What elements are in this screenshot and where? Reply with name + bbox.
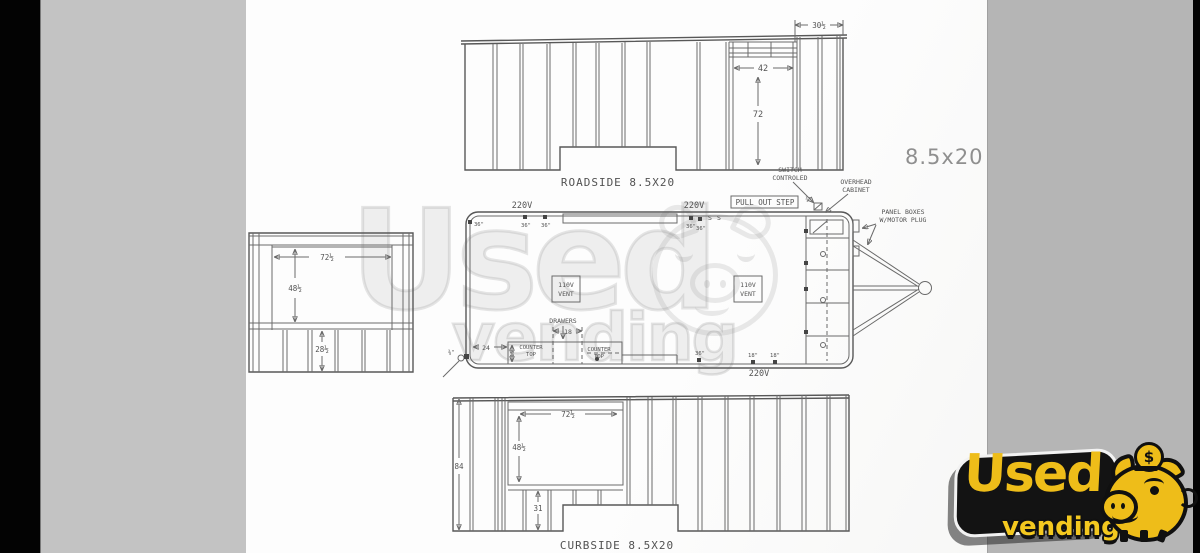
curbside-dim-height: 84	[454, 462, 464, 471]
vent-right-label1: 110V	[740, 281, 756, 289]
roadside-siding	[493, 42, 729, 170]
outlet-label: 36"	[521, 223, 531, 229]
vent-right-label2: VENT	[740, 290, 756, 298]
roadside-title: ROADSIDE 8.5X20	[561, 176, 675, 189]
curbside-dim-window-width: 72½	[561, 410, 575, 419]
drawers-label: DRAWERS	[549, 317, 576, 325]
sheet-size-label: 8.5x20	[905, 145, 984, 169]
vent-box-right	[734, 276, 762, 302]
roadside-dim-top: 30½	[812, 21, 826, 30]
roadside-dim-window-height: 72	[753, 110, 763, 120]
outlet-label: 18"	[748, 353, 758, 359]
pig-nostril-icon	[1111, 503, 1115, 509]
switch-controlled-label2: CONTROLED	[772, 174, 807, 182]
faucet-icon	[595, 357, 599, 361]
power-label-220v: 220V	[684, 201, 704, 211]
trailer-tongue	[853, 220, 932, 336]
logo-word-used: Used	[963, 448, 1103, 500]
power-label-220v: 220V	[749, 369, 769, 379]
roadside-siding-wheelwell	[573, 42, 650, 147]
hitch-coupler	[919, 282, 932, 295]
counter2-label1: COUNTER	[587, 347, 611, 353]
pig-smile-icon	[1112, 508, 1138, 523]
switch-controlled-label1: SWITCH	[778, 166, 802, 174]
outlet-label: 36"	[696, 226, 706, 232]
panel-boxes-label1: PANEL BOXES	[881, 208, 924, 216]
pig-tail-icon	[1178, 488, 1198, 508]
cabinet-bank	[804, 216, 849, 364]
lower-shelf	[622, 355, 677, 364]
counter-area: DRAWERS 18 COUNTER TOP COUNTER TOP 24 15	[474, 317, 677, 364]
pig-leg-icon	[1120, 530, 1128, 542]
pull-out-step-label: PULL OUT STEP	[736, 198, 795, 207]
curbside-title: CURBSIDE 8.5X20	[560, 539, 674, 552]
vent-left-label1: 110V	[558, 281, 574, 289]
end-dim-width: 72½	[320, 253, 334, 262]
jack-label: ⅜"	[448, 349, 455, 356]
outlet-label: 36"	[541, 223, 551, 229]
vent-box-left	[552, 276, 580, 302]
curbside-dim-window-height: 48½	[512, 443, 526, 452]
pig-eye-icon	[1150, 486, 1159, 495]
power-label-220v: 220V	[512, 201, 532, 211]
overhead-cabinet-label2: CABINET	[842, 186, 869, 194]
end-siding	[283, 330, 390, 372]
switch-symbol: S	[717, 214, 721, 222]
curbside-siding-wheelwell	[627, 397, 676, 505]
end-dim-lower: 28½	[315, 345, 329, 354]
counter1-label2: TOP	[526, 352, 537, 358]
outlet-label: 18"	[770, 353, 780, 359]
floor-plan: 110V VENT 110V VENT DRAWERS 18 COUNTER T…	[443, 166, 932, 379]
roadside-elevation: 30½ 42 72 ROADSIDE 8.5X20	[461, 20, 847, 189]
usedvending-logo: Used vending $	[950, 440, 1195, 550]
curbside-dim-lower: 31	[533, 504, 542, 513]
counter1-label1: COUNTER	[519, 345, 543, 351]
outlet-label: 36"	[695, 351, 705, 357]
outlet-label: 36"	[686, 224, 696, 230]
panel-box	[853, 220, 859, 232]
roadside-window-header	[729, 42, 797, 170]
counter-dim-24: 24	[482, 344, 490, 352]
pig-leg-icon	[1140, 530, 1148, 542]
end-dim-height: 48½	[288, 284, 302, 293]
outlet-label: 36"	[474, 222, 484, 228]
roadside-siding-right	[797, 36, 840, 170]
piggybank-mascot-icon: $	[1100, 446, 1192, 546]
vent-left-label2: VENT	[558, 290, 574, 298]
panel-boxes-label2: W/MOTOR PLUG	[880, 216, 927, 224]
overhead-cabinet-label1: OVERHEAD	[840, 178, 871, 186]
coin-slot-icon	[1134, 466, 1158, 471]
curbside-elevation: 72½ 48½ 31 84 CURBSIDE 8.5X20	[453, 395, 849, 552]
drawers-dim: 18	[564, 328, 572, 336]
counter-dim-15: 15	[510, 350, 516, 357]
photo-viewer: Used vending 30½	[0, 0, 1200, 553]
roadside-dim-window-width: 42	[758, 64, 768, 74]
serving-window-shelf	[563, 214, 677, 223]
end-elevation: 72½ 48½ 28½	[249, 233, 413, 372]
switch-symbol: S	[708, 214, 712, 222]
